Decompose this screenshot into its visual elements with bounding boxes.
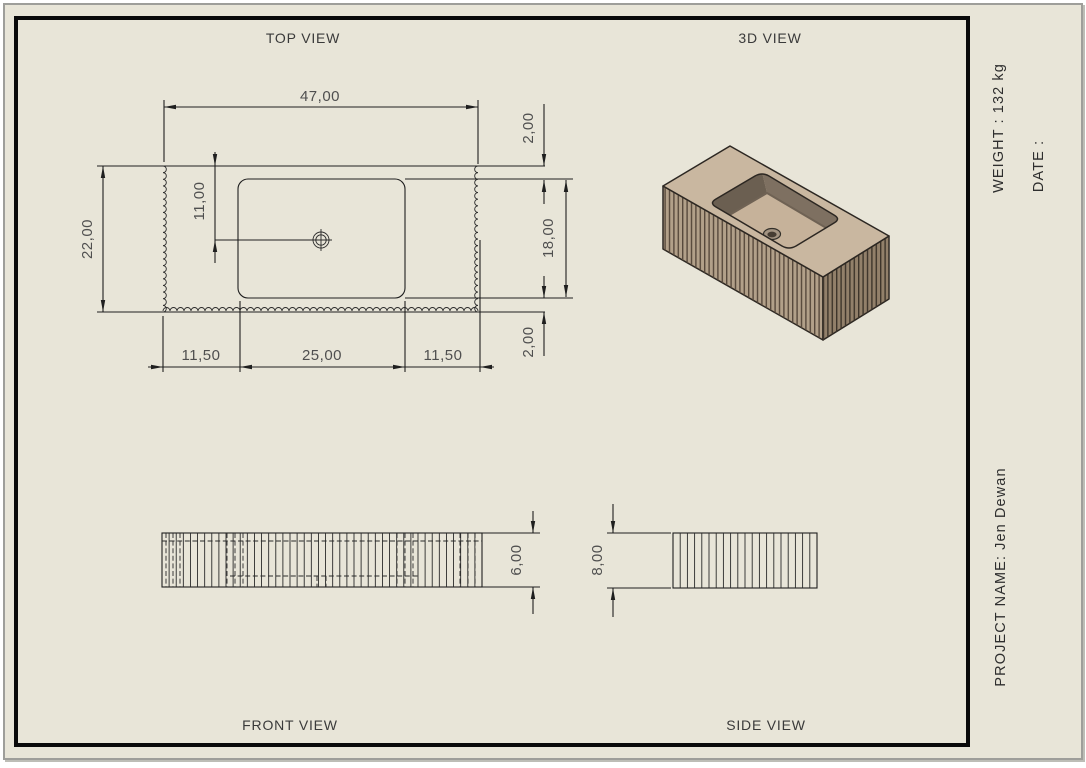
project-name-text: PROJECT NAME: Jen Dewan bbox=[993, 467, 1009, 686]
drawing-sheet bbox=[3, 3, 1083, 760]
date-text: DATE : bbox=[1031, 140, 1047, 192]
drawing-frame-border bbox=[14, 16, 970, 747]
front-view-label: FRONT VIEW bbox=[242, 717, 338, 733]
3d-view-label: 3D VIEW bbox=[738, 30, 801, 46]
side-view-label: SIDE VIEW bbox=[726, 717, 806, 733]
cad-drawing-screenshot: { "sheet": { "type": "technical-drawing"… bbox=[0, 0, 1086, 768]
weight-text: WEIGHT : 132 kg bbox=[991, 63, 1007, 193]
top-view-label: TOP VIEW bbox=[266, 30, 340, 46]
